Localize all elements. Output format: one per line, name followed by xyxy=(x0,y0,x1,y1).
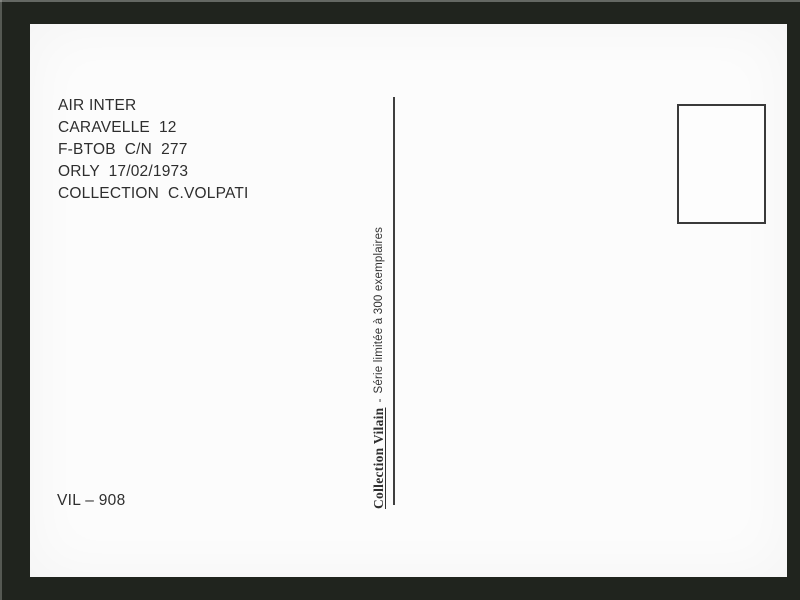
caption-block: AIR INTER CARAVELLE 12 F-BTOB C/N 277 OR… xyxy=(58,95,249,205)
publisher-name: Collection Vilain xyxy=(371,408,387,509)
scan-edge-highlight-left xyxy=(0,0,2,600)
caption-line-airline: AIR INTER xyxy=(58,95,249,117)
caption-line-registration: F-BTOB C/N 277 xyxy=(58,139,249,161)
scan-edge-highlight-top xyxy=(0,0,800,2)
edition-strip: Collection Vilain - Série limitée à 300 … xyxy=(366,227,392,509)
caption-line-aircraft: CARAVELLE 12 xyxy=(58,117,249,139)
limited-edition-note: Série limitée à 300 exemplaires xyxy=(373,227,385,394)
separator-dash: - xyxy=(372,399,386,403)
divider-line xyxy=(393,97,395,505)
stamp-box xyxy=(677,104,766,224)
caption-line-location-date: ORLY 17/02/1973 xyxy=(58,161,249,183)
caption-line-collection: COLLECTION C.VOLPATI xyxy=(58,183,249,205)
reference-number: VIL – 908 xyxy=(57,490,125,512)
postcard-back: AIR INTER CARAVELLE 12 F-BTOB C/N 277 OR… xyxy=(30,24,787,577)
